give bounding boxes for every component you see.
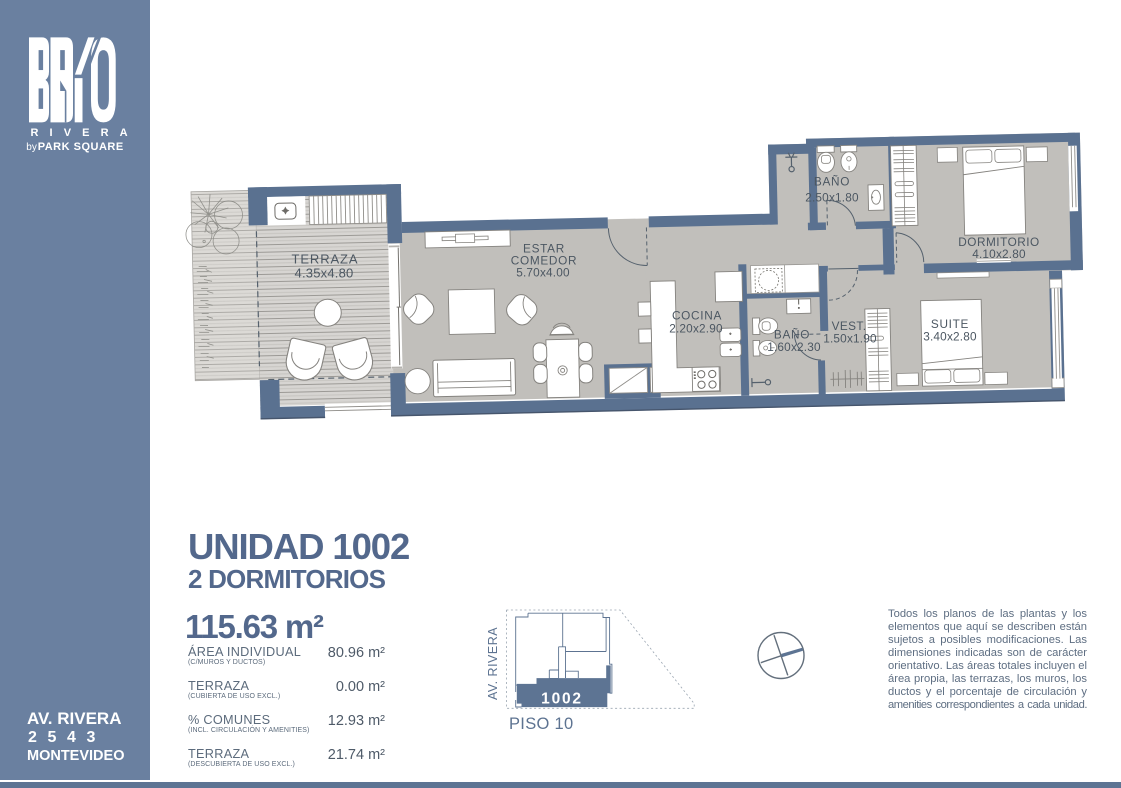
svg-text:5.70x4.00: 5.70x4.00 [516, 266, 570, 280]
svg-text:1.60x2.30: 1.60x2.30 [767, 340, 821, 354]
svg-text:2.20x2.90: 2.20x2.90 [669, 322, 723, 336]
svg-text:1.50x1.90: 1.50x1.90 [823, 332, 877, 346]
svg-text:TERRAZA: TERRAZA [292, 252, 359, 267]
svg-text:BAÑO: BAÑO [814, 175, 850, 189]
svg-text:3.40x2.80: 3.40x2.80 [923, 330, 977, 344]
svg-text:4.35x4.80: 4.35x4.80 [295, 266, 354, 281]
svg-text:4.10x2.80: 4.10x2.80 [972, 247, 1026, 261]
svg-text:2.50x1.80: 2.50x1.80 [805, 191, 859, 205]
svg-text:1002: 1002 [541, 691, 583, 708]
svg-text:COCINA: COCINA [672, 309, 722, 323]
